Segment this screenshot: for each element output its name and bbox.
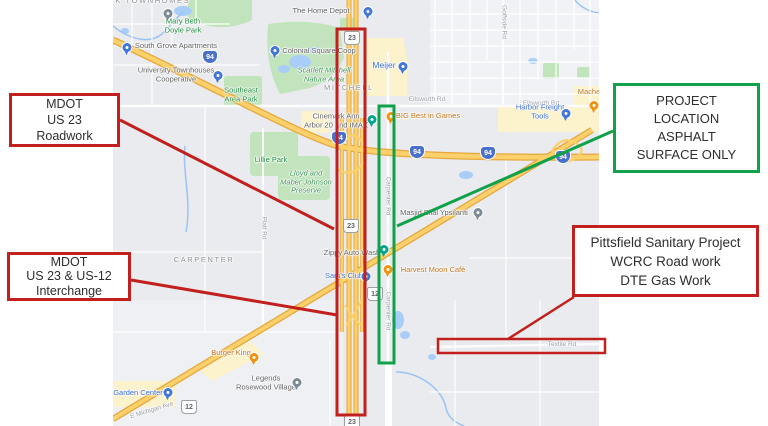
map-label: Cinemark Ann Arbor 20 and IMAX <box>304 113 368 130</box>
us-route-12-shield-icon: 12 <box>181 400 197 414</box>
callout-line: US 23 <box>12 112 117 128</box>
map-label: University Townhouses Cooperative <box>138 67 215 84</box>
poi-pin-the-home-depot <box>364 7 373 16</box>
interstate-94-shield-icon: 94 <box>410 146 424 158</box>
map-label: The Home Depot <box>292 7 349 16</box>
map-label: Harvest Moon Café <box>401 266 466 275</box>
map-label: ECK TOWNHOMES <box>113 0 190 5</box>
map-label: Zippy Auto Wash <box>324 249 380 258</box>
poi-pin-zippy-auto-wash <box>380 245 389 254</box>
map-label: E Michigan Ave <box>129 400 174 421</box>
callout-line: LOCATION <box>616 110 757 128</box>
poi-pin-colonial-square-coop <box>271 46 280 55</box>
annotated-map-figure: ECK TOWNHOMESThe Home DepotMary Beth Doy… <box>0 0 768 426</box>
map-label: Legends Rosewood Village <box>236 375 296 392</box>
map-label: Colonial Square Coop <box>282 47 355 56</box>
callout-line: PROJECT <box>616 92 757 110</box>
poi-pin-harvest-moon-cafe <box>384 265 393 274</box>
poi-pin-mary-beth-doyle-park <box>164 9 173 18</box>
callout-line: US 23 & US-12 <box>10 269 128 284</box>
map-label: Carpenter Rd <box>383 176 392 215</box>
poi-pin-masjid-bilal-ypsilanti <box>474 208 483 217</box>
map-label: Burger King <box>211 349 251 358</box>
map-label: Platt Rd <box>259 216 268 239</box>
callout-project-location-asphalt: PROJECT LOCATION ASPHALT SURFACE ONLY <box>613 83 760 173</box>
callout-line: SURFACE ONLY <box>616 146 757 164</box>
poi-pin-harbor-freight-tools <box>562 109 571 118</box>
callout-line: Pittsfield Sanitary Project <box>575 233 756 252</box>
map-label: Lloyd and Maber Johnson Preserve <box>280 169 332 195</box>
interstate-94-shield-icon: 94 <box>481 147 495 159</box>
callout-line: Interchange <box>10 284 128 299</box>
map-label: MITCHELL <box>324 84 374 93</box>
callout-line: WCRC Road work <box>575 252 756 271</box>
callout-pittsfield-sanitary-project: Pittsfield Sanitary Project WCRC Road wo… <box>572 225 759 297</box>
poi-pin-sams-club <box>362 272 371 281</box>
poi-pin-meijer <box>399 62 408 71</box>
map-label: Masjid Bilal Ypsilanti <box>400 209 468 218</box>
poi-pin-south-grove-apartments <box>123 43 132 52</box>
map-label: Mary Beth Doyle Park <box>165 18 202 35</box>
poi-pin-burger-king <box>250 353 259 362</box>
callout-line: Roadwork <box>12 128 117 144</box>
map-label: Golfside Rd <box>499 5 508 39</box>
map-labels-layer: ECK TOWNHOMESThe Home DepotMary Beth Doy… <box>113 0 599 426</box>
us-route-23-shield-icon: 23 <box>344 31 360 45</box>
poi-pin-garden-center <box>164 388 173 397</box>
poi-pin-macheko <box>590 101 599 110</box>
map-label: Meijer <box>372 61 395 70</box>
callout-mdot-us23-roadwork: MDOT US 23 Roadwork <box>9 93 120 147</box>
map-label: Lillie Park <box>255 156 288 165</box>
callout-line: ASPHALT <box>616 128 757 146</box>
interstate-94-shield-icon: 94 <box>332 132 346 144</box>
poi-pin-legends-rosewood-village <box>293 378 302 387</box>
callout-line: MDOT <box>12 96 117 112</box>
map-label: Scarlett Mitchell Nature Area <box>298 67 351 84</box>
map-label: Carpenter Rd <box>383 291 392 330</box>
poi-pin-university-townhouses <box>214 71 223 80</box>
us-route-12-shield-icon: 12 <box>367 287 383 301</box>
poi-pin-big-best-in-games <box>387 112 396 121</box>
map-label: South Grove Apartments <box>135 42 217 51</box>
map-label: BIG Best in Games <box>396 112 460 121</box>
map-canvas: ECK TOWNHOMESThe Home DepotMary Beth Doy… <box>113 0 599 426</box>
us-route-23-shield-icon: 23 <box>343 219 359 233</box>
map-label: CARPENTER <box>174 256 235 265</box>
map-label: Textile Rd <box>548 341 577 350</box>
map-label: Ellsworth Rd <box>409 96 445 105</box>
map-label: Mache <box>578 88 599 97</box>
poi-pin-cinemark <box>368 115 377 124</box>
map-label: Southeast Area Park <box>224 87 258 104</box>
interstate-94-shield-icon: 94 <box>556 151 570 163</box>
interstate-94-shield-icon: 94 <box>203 51 217 63</box>
callout-mdot-us23-us12-interchange: MDOT US 23 & US-12 Interchange <box>7 252 131 301</box>
callout-line: MDOT <box>10 255 128 270</box>
map-label: Garden Center <box>113 389 163 398</box>
map-label: Sam's Club <box>325 272 363 281</box>
callout-line: DTE Gas Work <box>575 271 756 290</box>
us-route-23-shield-icon: 23 <box>344 415 360 426</box>
